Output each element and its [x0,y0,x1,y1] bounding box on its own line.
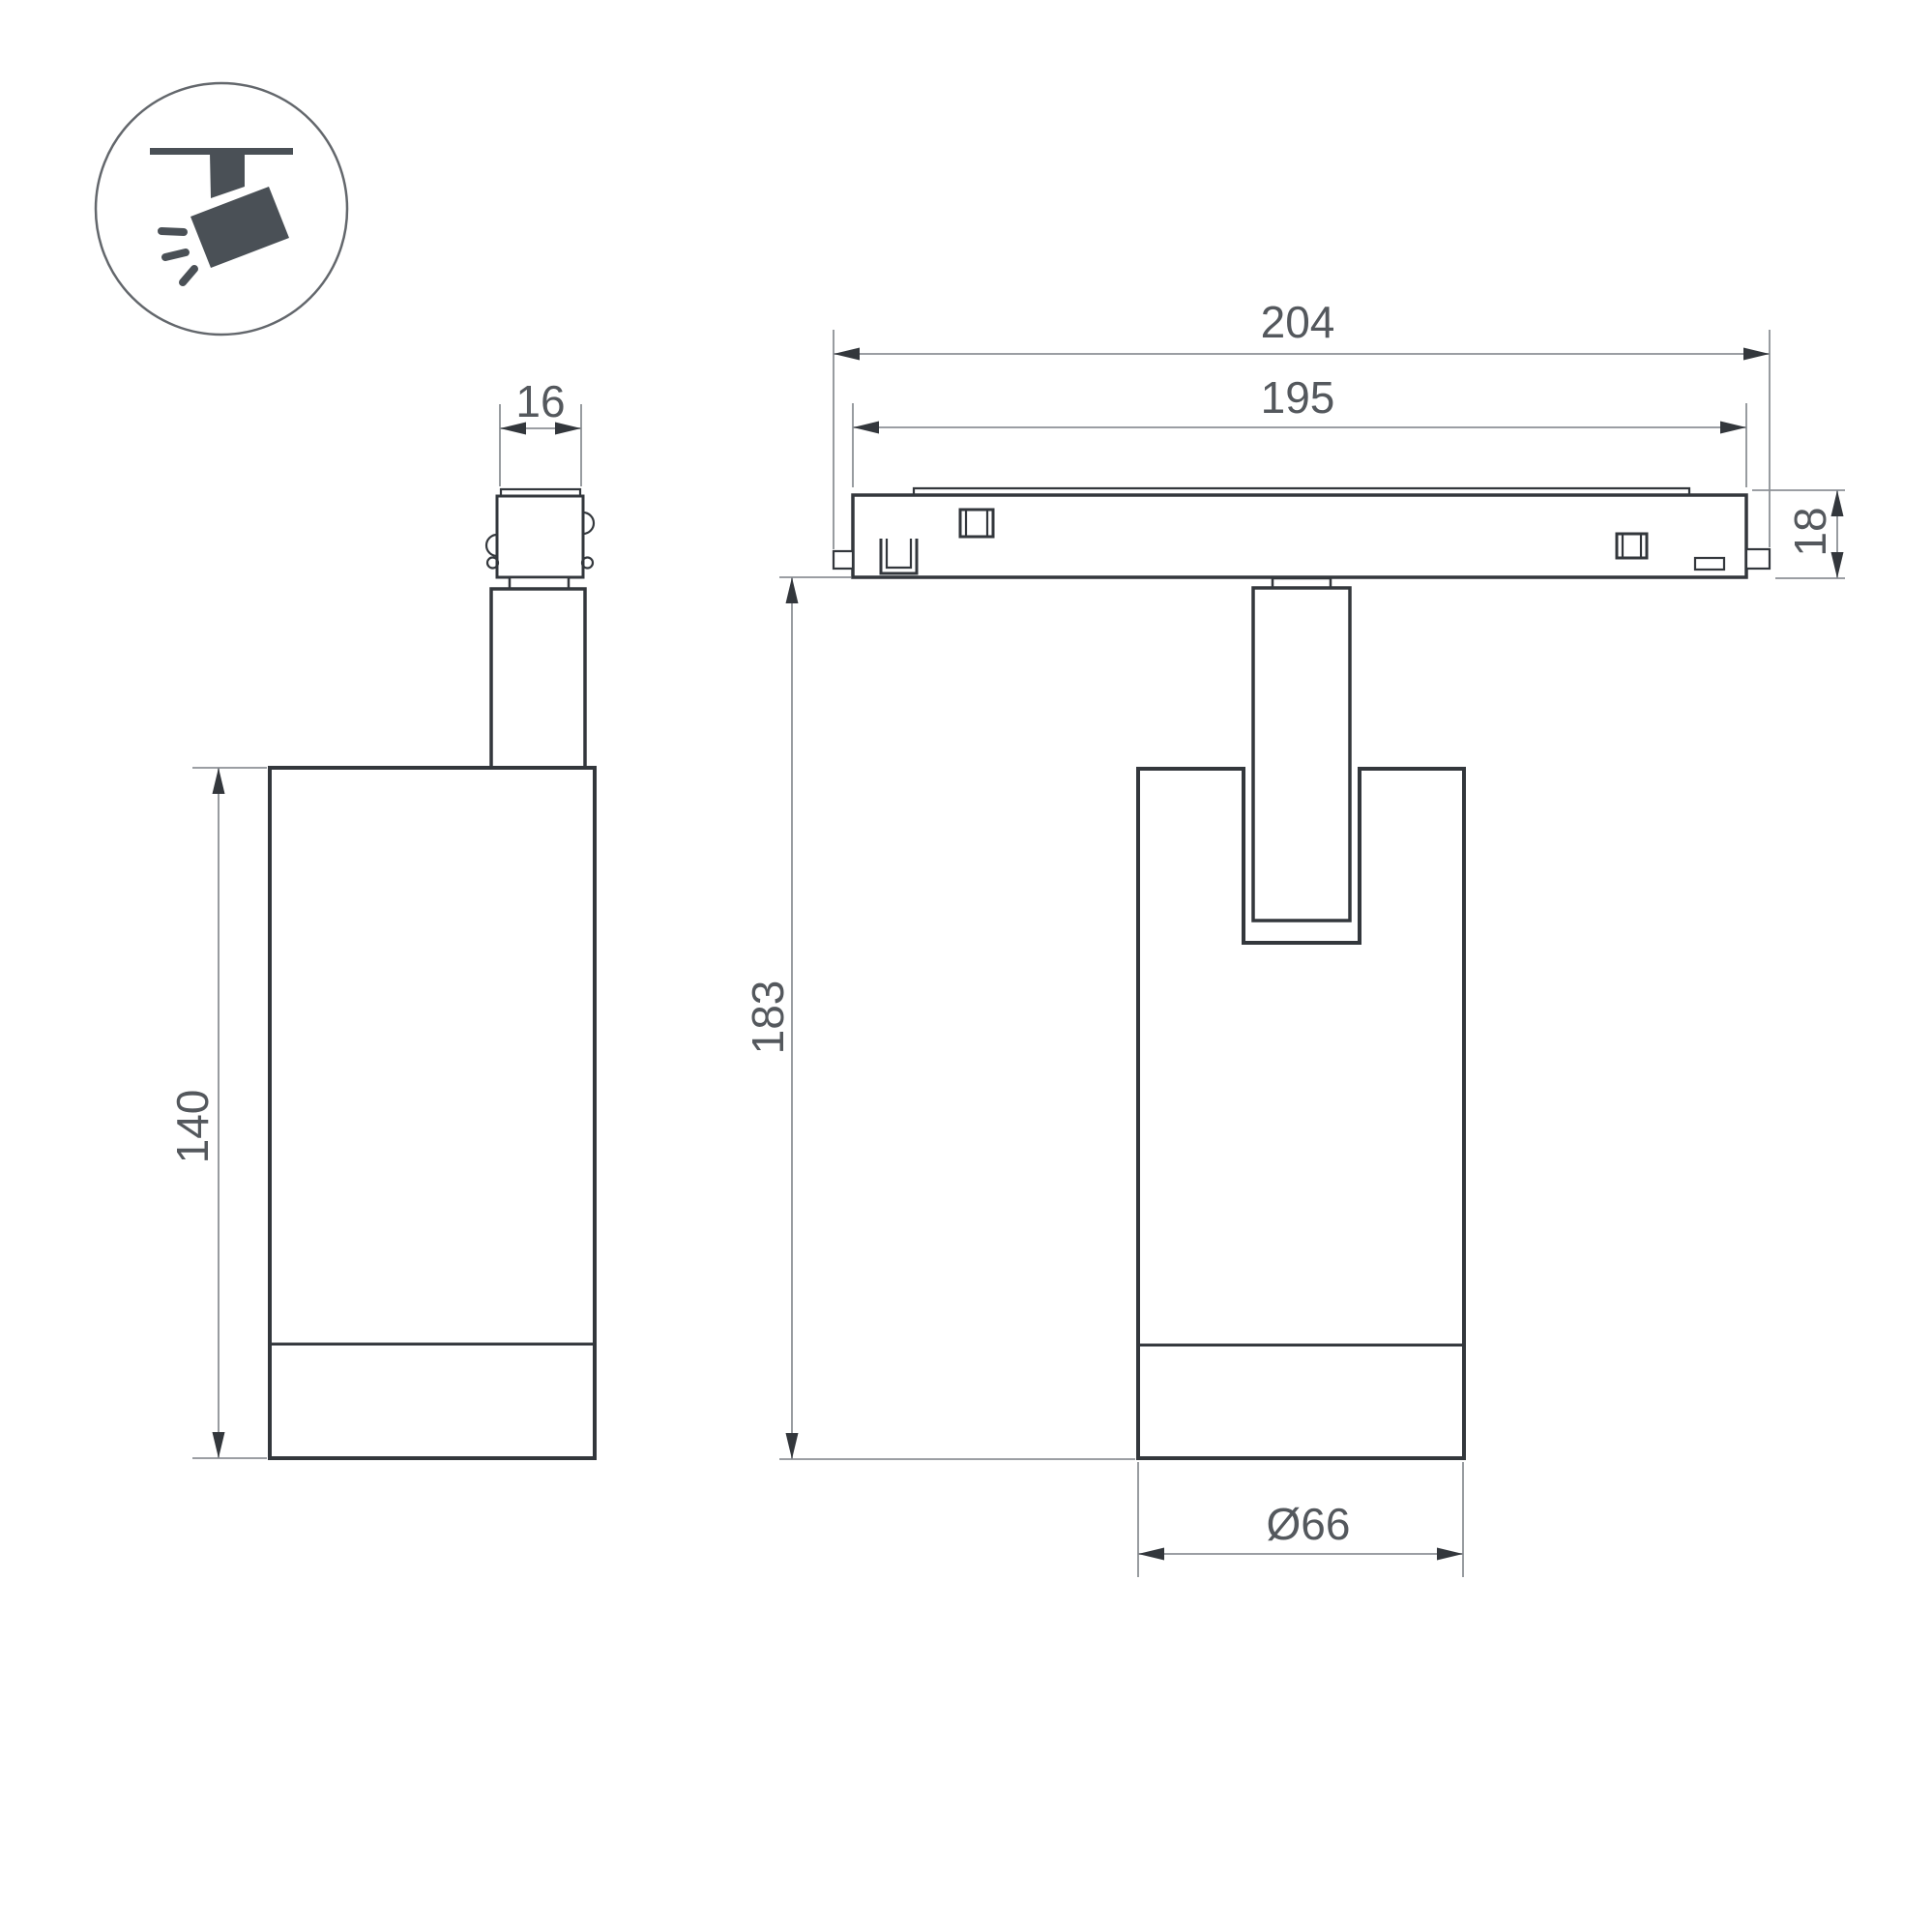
icon-light-ray-1 [161,231,184,232]
front-view [834,488,1770,1458]
dim204-arrow-right [1743,348,1770,361]
side-adapter-left-lug [486,535,497,556]
dimension-183: 183 [743,577,1135,1459]
dimension-140: 140 [167,768,267,1458]
dimension-195: 195 [853,372,1746,487]
dim140-arrow-bottom [213,1432,225,1458]
side-adapter-body [497,496,583,577]
dim204-arrow-left [834,348,860,361]
front-track-window-right [1617,534,1647,558]
icon-light-ray-3 [183,269,194,282]
dim183-arrow-top [786,577,799,603]
dim-label-66: Ø66 [1267,1499,1351,1549]
icon-mount-stem [210,153,245,198]
side-lamp-body [270,768,595,1458]
dimension-66: Ø66 [1138,1462,1463,1577]
dimension-16: 16 [500,376,581,486]
front-track-left-tab [834,551,853,569]
dim140-arrow-top [213,768,225,794]
dim66-arrow-right [1437,1548,1463,1561]
dim-label-195: 195 [1261,372,1335,423]
dim195-arrow-left [853,422,879,434]
dim-label-18: 18 [1785,507,1835,556]
icon-lamp-head [190,187,289,268]
dim-label-16: 16 [515,376,565,426]
dim-label-140: 140 [167,1090,218,1164]
front-stem [1253,588,1350,921]
dim195-arrow-right [1720,422,1746,434]
dim183-arrow-bottom [786,1433,799,1459]
dim-label-183: 183 [743,981,793,1055]
track-spotlight-icon [96,83,347,335]
side-adapter-right-lug [583,512,594,534]
dimension-drawing: 16 204 195 18 [0,0,1932,1932]
icon-light-ray-2 [165,252,186,257]
drawing-svg: 16 204 195 18 [0,0,1932,1932]
front-track-right-tab [1746,549,1770,569]
side-stem [491,589,585,768]
dim-label-204: 204 [1261,297,1335,347]
side-view [270,489,595,1458]
side-neck [510,577,569,589]
dim66-arrow-left [1138,1548,1164,1561]
front-track-slot-plate [1695,558,1724,570]
